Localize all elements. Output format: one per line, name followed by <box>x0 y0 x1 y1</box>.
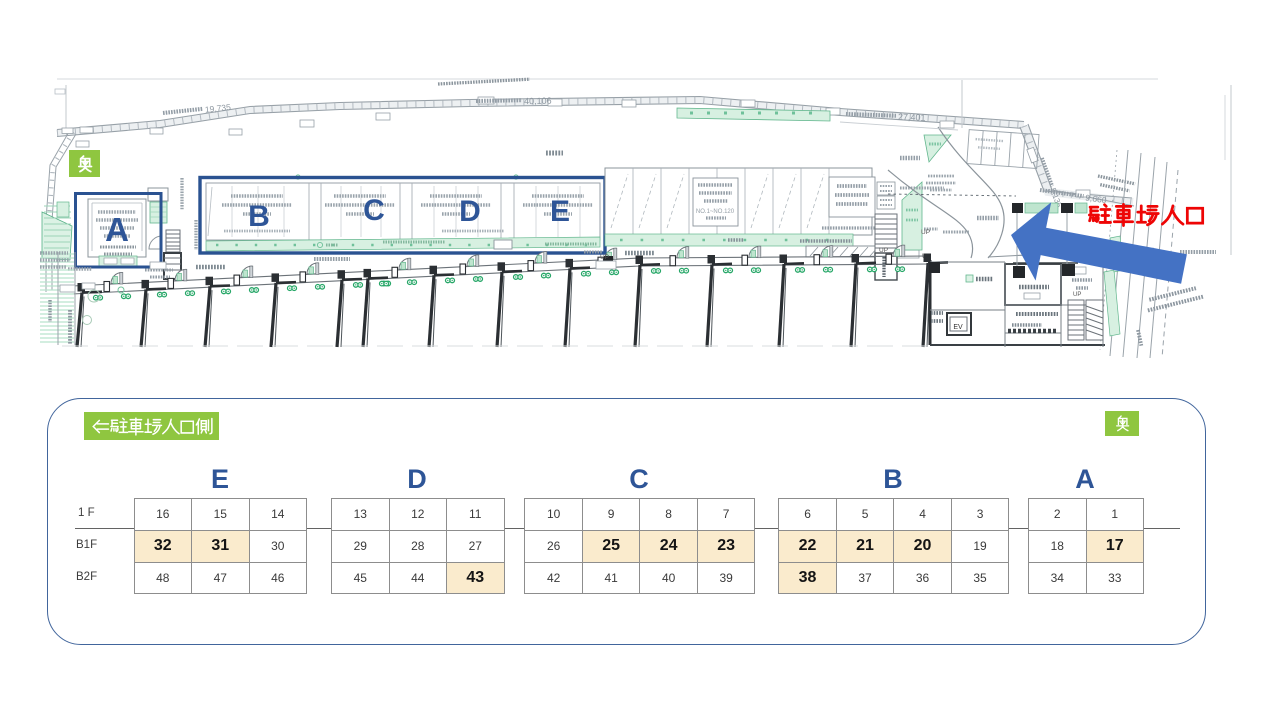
svg-text:27,401: 27,401 <box>898 112 926 123</box>
svg-text:UP: UP <box>1073 292 1081 298</box>
svg-text:B: B <box>248 200 270 233</box>
svg-text:NO.1~NO.120: NO.1~NO.120 <box>696 209 735 215</box>
svg-text:D: D <box>459 195 481 228</box>
svg-text:E: E <box>550 195 570 228</box>
svg-text:40,106: 40,106 <box>524 96 552 106</box>
svg-text:C: C <box>363 194 385 227</box>
svg-text:UP: UP <box>600 254 609 261</box>
svg-text:EV: EV <box>953 324 963 331</box>
svg-text:UP: UP <box>921 229 930 236</box>
svg-text:A: A <box>105 211 129 248</box>
